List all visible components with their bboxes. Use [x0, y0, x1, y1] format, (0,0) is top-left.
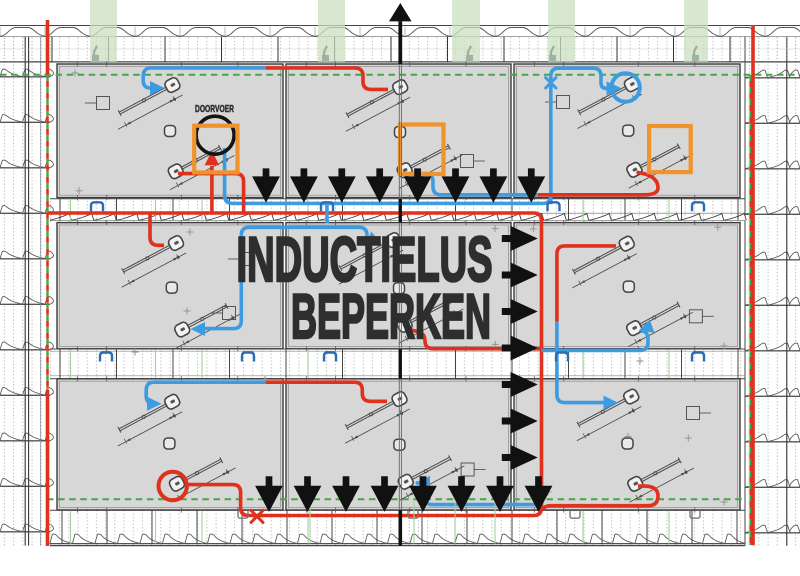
svg-text:DOORVOER: DOORVOER: [195, 104, 234, 115]
svg-text:BEPERKEN: BEPERKEN: [291, 282, 491, 352]
